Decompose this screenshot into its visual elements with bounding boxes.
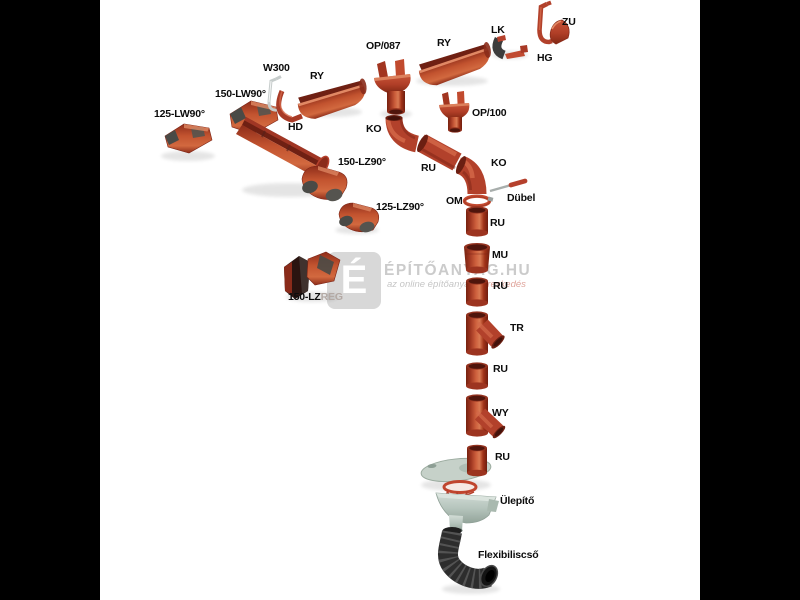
part-tr-tee-illustration: [466, 311, 506, 355]
label-ry-right: RY: [437, 37, 451, 49]
label-tr: TR: [510, 322, 524, 334]
label-hd: HD: [288, 121, 303, 133]
label-ru-diagonal: RU: [421, 162, 436, 174]
label-op100: OP/100: [472, 107, 506, 119]
part-om-clamp-illustration: [465, 196, 494, 206]
part-ru-segment-4-illustration: [467, 445, 487, 477]
part-150-lz90-illustration: [301, 166, 348, 203]
part-ru-segment-1-illustration: [466, 206, 488, 236]
label-mu: MU: [492, 249, 508, 261]
part-ru-segment-3-illustration: [466, 362, 488, 389]
letterbox-bar-left: [0, 0, 100, 600]
label-125-lw90: 125-LW90°: [154, 108, 205, 120]
part-ko-elbow-upper-illustration: [385, 115, 417, 144]
label-125-lz90: 125-LZ90°: [376, 201, 424, 213]
label-ru-4: RU: [495, 451, 510, 463]
label-150-lz90: 150-LZ90°: [338, 156, 386, 168]
gutter-system-illustration: [100, 0, 700, 600]
part-mu-sleeve-illustration: [464, 243, 490, 274]
label-ulepito: Ülepítő: [500, 495, 534, 507]
label-ko-lower: KO: [491, 157, 506, 169]
label-150-lzreg: 150-LZREG: [288, 291, 343, 303]
label-ru-2: RU: [493, 280, 508, 292]
label-ru-1: RU: [490, 217, 505, 229]
part-lk-illustration: [497, 35, 528, 59]
label-flexibiliscso: Flexibiliscső: [478, 549, 538, 561]
product-diagram-page: { "window": { "background": "#000000", "…: [0, 0, 800, 600]
label-zu: ZU: [562, 16, 576, 28]
letterbox-bar-right: [700, 0, 800, 600]
label-150-lzreg-suffix: REG: [321, 291, 343, 303]
label-lk: LK: [491, 24, 505, 36]
label-150-lzreg-main: 150-LZ: [288, 291, 321, 303]
label-hg: HG: [537, 52, 552, 64]
part-op100-illustration: [439, 91, 470, 133]
part-ru-segment-2-illustration: [466, 277, 488, 306]
label-dubel: Dübel: [507, 192, 535, 204]
part-ulepito-illustration: [436, 482, 499, 534]
label-ko-upper: KO: [366, 123, 381, 135]
label-om: OM: [446, 195, 463, 207]
label-wy: WY: [492, 407, 509, 419]
diagram-content-area: É ÉPÍTŐANYAG.HU az online építőanyag ker…: [100, 0, 700, 600]
label-op087: OP/087: [366, 40, 400, 52]
label-150-lw90: 150-LW90°: [215, 88, 266, 100]
label-ry-left: RY: [310, 70, 324, 82]
part-dubel-illustration: [490, 181, 525, 191]
label-w300: W300: [263, 62, 290, 74]
part-op087-illustration: [374, 59, 411, 115]
part-125-lw90-illustration: [165, 124, 212, 153]
label-ru-3: RU: [493, 363, 508, 375]
